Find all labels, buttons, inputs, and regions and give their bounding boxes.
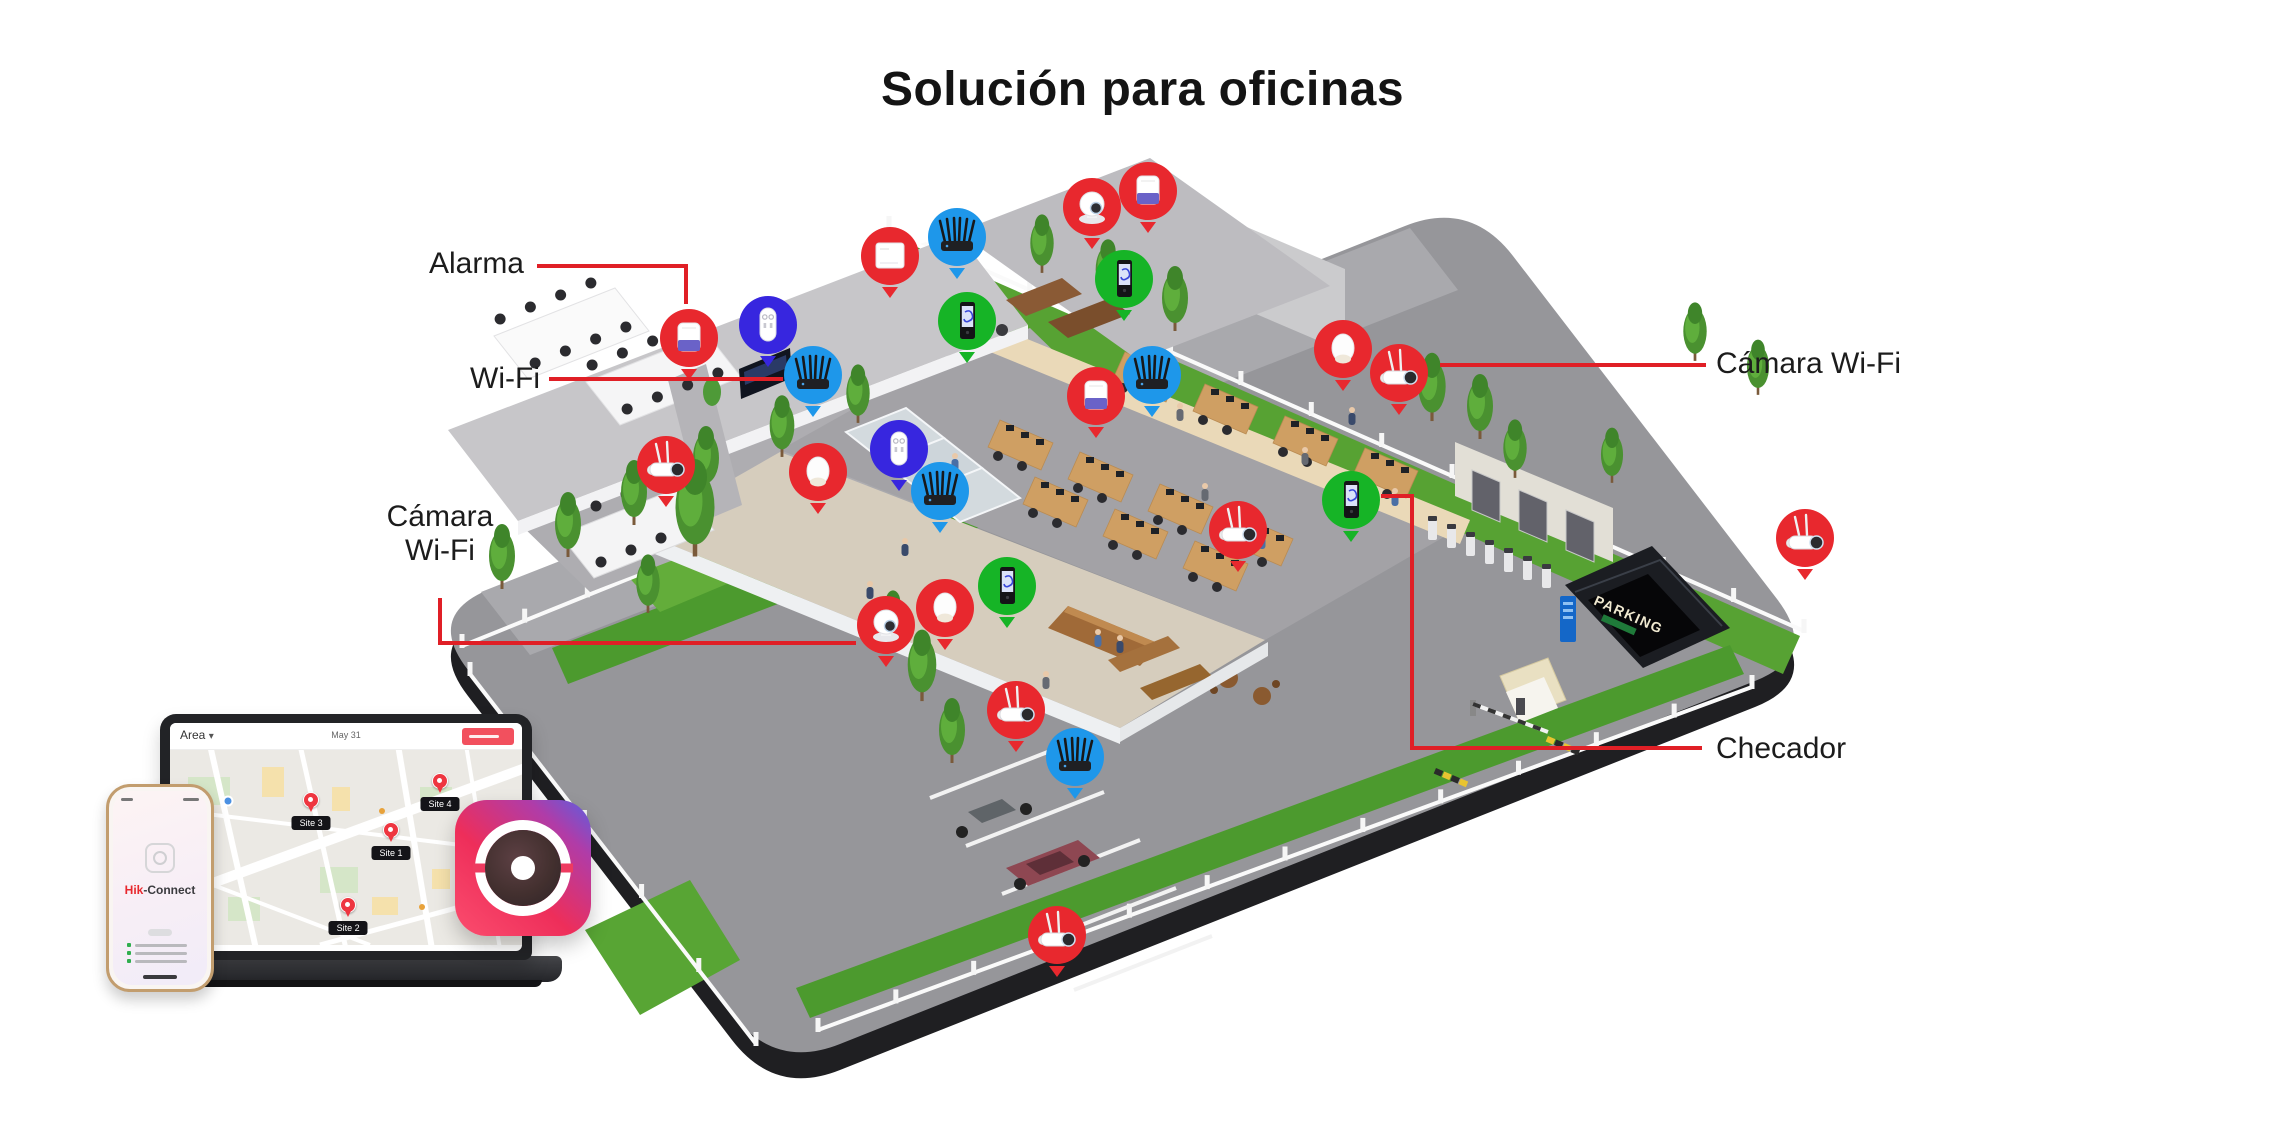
- router-icon: [1130, 353, 1174, 397]
- marker-pointer: [999, 617, 1015, 628]
- router-icon: [791, 353, 835, 397]
- camara-wifi-right-callout-line: [1440, 363, 1706, 367]
- router-icon: [935, 215, 979, 259]
- device-marker-bullet-camera: [1209, 501, 1267, 572]
- bullet-camera-icon: [994, 688, 1038, 732]
- device-marker-ptz-camera: [857, 596, 915, 667]
- current-location-dot: [224, 797, 233, 806]
- infographic-canvas: PARKING Sol: [0, 0, 2285, 1143]
- ptz-camera-icon: [864, 603, 908, 647]
- motion-sensor-icon: [923, 586, 967, 630]
- marker-pointer: [1116, 310, 1132, 321]
- motion-sensor-icon: [1321, 327, 1365, 371]
- device-marker-siren: [1067, 367, 1125, 438]
- device-marker-hub: [861, 227, 919, 298]
- device-marker-router: [911, 462, 969, 533]
- marker-pointer: [959, 352, 975, 363]
- label-camara-wifi-right: Cámara Wi-Fi: [1716, 347, 1901, 381]
- map-pin-site[interactable]: [303, 792, 319, 814]
- camara-wifi-left-callout-line: [438, 598, 442, 645]
- marker-pointer: [1335, 380, 1351, 391]
- phone-status-bar: [121, 797, 199, 803]
- label-wifi: Wi-Fi: [340, 362, 540, 396]
- device-marker-bullet-camera: [637, 436, 695, 507]
- check-icon: [127, 951, 131, 955]
- hik-connect-logo-icon: [145, 843, 175, 873]
- alarma-callout-line: [537, 264, 688, 268]
- siren-icon: [1126, 169, 1170, 213]
- device-marker-checador: [938, 292, 996, 363]
- map-site-label[interactable]: Site 4: [420, 797, 459, 811]
- marker-pointer: [882, 287, 898, 298]
- marker-pointer: [937, 639, 953, 650]
- bullet-camera-icon: [1216, 508, 1260, 552]
- motion-sensor-icon: [796, 450, 840, 494]
- alarma-callout-line: [684, 264, 688, 304]
- phone-list-item: [127, 951, 193, 955]
- map-pin-site[interactable]: [340, 897, 356, 919]
- marker-pointer: [932, 522, 948, 533]
- bullet-camera-icon: [1035, 913, 1079, 957]
- marker-pointer: [878, 656, 894, 667]
- phone-list-item: [127, 959, 193, 963]
- checador-icon: [1329, 478, 1373, 522]
- router-icon: [1053, 735, 1097, 779]
- marker-pointer: [805, 406, 821, 417]
- bullet-camera-icon: [1377, 351, 1421, 395]
- marker-pointer: [1230, 561, 1246, 572]
- check-icon: [127, 943, 131, 947]
- marker-pointer: [1144, 406, 1160, 417]
- wifi-callout-line: [549, 377, 783, 381]
- marker-pointer: [1049, 966, 1065, 977]
- phone-version-pill: [148, 929, 172, 936]
- phone: Hik-Connect: [106, 784, 214, 992]
- device-marker-bullet-camera: [1028, 906, 1086, 977]
- device-marker-router: [784, 346, 842, 417]
- device-marker-siren: [1119, 162, 1177, 233]
- marker-pointer: [1084, 238, 1100, 249]
- marker-pointer: [810, 503, 826, 514]
- device-marker-motion-sensor: [916, 579, 974, 650]
- label-checador: Checador: [1716, 732, 1846, 766]
- siren-icon: [667, 316, 711, 360]
- bullet-camera-icon: [1783, 516, 1827, 560]
- device-marker-motion-sensor: [1314, 320, 1372, 391]
- map-pin-site[interactable]: [432, 773, 448, 795]
- device-marker-checador: [1322, 471, 1380, 542]
- checador-callout-line: [1410, 746, 1702, 750]
- device-marker-bullet-camera: [1370, 344, 1428, 415]
- router-icon: [918, 469, 962, 513]
- marker-pointer: [1343, 531, 1359, 542]
- ptz-camera-icon: [1070, 185, 1114, 229]
- hik-connect-app-icon[interactable]: [455, 800, 591, 936]
- marker-pointer: [1067, 788, 1083, 799]
- hik-connect-wordmark: Hik-Connect: [113, 883, 207, 897]
- checador-icon: [1102, 257, 1146, 301]
- marker-pointer: [949, 268, 965, 279]
- marker-pointer: [760, 356, 776, 367]
- marker-pointer: [1391, 404, 1407, 415]
- keypad-icon: [746, 303, 790, 347]
- marker-pointer: [1140, 222, 1156, 233]
- label-camara-wifi-left: Cámara Wi-Fi: [330, 500, 550, 568]
- device-marker-ptz-camera: [1063, 178, 1121, 249]
- map-site-label[interactable]: Site 1: [372, 846, 411, 860]
- device-marker-siren: [660, 309, 718, 380]
- device-marker-motion-sensor: [789, 443, 847, 514]
- camara-wifi-left-callout-line: [438, 641, 856, 645]
- device-marker-router: [928, 208, 986, 279]
- device-marker-bullet-camera: [987, 681, 1045, 752]
- phone-list-item: [127, 943, 193, 947]
- marker-pointer: [1088, 427, 1104, 438]
- check-icon: [127, 959, 131, 963]
- phone-home-indicator[interactable]: [143, 975, 177, 979]
- marker-pointer: [1008, 741, 1024, 752]
- marker-pointer: [658, 496, 674, 507]
- checador-icon: [945, 299, 989, 343]
- map-pin-site[interactable]: [383, 822, 399, 844]
- siren-icon: [1074, 374, 1118, 418]
- map-toolbar: Area ▾ May 31: [170, 723, 522, 750]
- device-marker-checador: [1095, 250, 1153, 321]
- label-alarma: Alarma: [324, 247, 524, 281]
- hub-icon: [868, 234, 912, 278]
- map-site-label[interactable]: Site 3: [292, 816, 331, 830]
- map-action-button[interactable]: [462, 728, 514, 745]
- phone-screen: Hik-Connect: [113, 791, 207, 985]
- checador-callout-line: [1410, 494, 1414, 750]
- device-marker-router: [1123, 346, 1181, 417]
- marker-pointer: [1797, 569, 1813, 580]
- checador-icon: [985, 564, 1029, 608]
- device-marker-bullet-camera: [1776, 509, 1834, 580]
- map-site-label[interactable]: Site 2: [329, 921, 368, 935]
- bullet-camera-icon: [644, 443, 688, 487]
- device-marker-router: [1046, 728, 1104, 799]
- marker-pointer: [891, 480, 907, 491]
- device-marker-checador: [978, 557, 1036, 628]
